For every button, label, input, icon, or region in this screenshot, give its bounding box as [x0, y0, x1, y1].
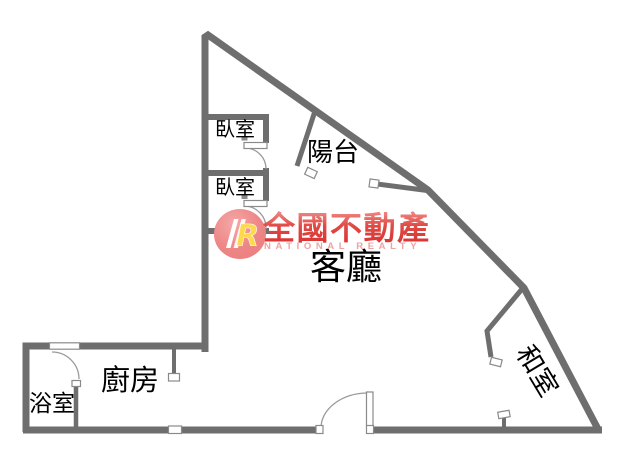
brand-name-en: NATIONAL REALTY	[264, 241, 421, 252]
door-leaf-entrance	[367, 392, 374, 426]
floor-plan-drawing: 臥室 臥室 陽台 客廳 廚房 浴室 和室 R 全國不動產 NATIONAL RE…	[0, 0, 638, 460]
door-arc-entrance	[321, 393, 368, 428]
door-arc-bathroom	[52, 352, 79, 379]
room-label-balcony: 陽台	[307, 138, 359, 168]
room-label-bathroom: 浴室	[29, 391, 75, 417]
floor-plan-canvas: 臥室 臥室 陽台 客廳 廚房 浴室 和室 R 全國不動產 NATIONAL RE…	[0, 0, 638, 460]
door-marker-balcony-right	[369, 179, 379, 188]
logo-monogram: R	[236, 219, 259, 254]
door-post-entrance-left	[316, 426, 323, 434]
door-leaf-bedroom2	[244, 201, 267, 207]
door-marker-tatami-stub	[498, 410, 510, 418]
door-marker-bathroom	[72, 381, 81, 387]
room-label-living-room: 客廳	[310, 247, 382, 288]
door-leaf-bathroom	[50, 343, 80, 349]
wall-tatami-partition	[487, 289, 522, 357]
door-marker-tatami	[490, 357, 502, 366]
brand-watermark: R 全國不動產 NATIONAL REALTY	[214, 209, 431, 259]
door-leaf-bedroom1	[244, 143, 267, 149]
door-marker-balcony-left	[305, 167, 318, 178]
wall-kitchen-top-left-and-outer-left	[26, 346, 49, 432]
door-marker-kitchen-stub	[169, 374, 180, 382]
door-arc-bedroom1	[244, 148, 266, 169]
room-label-kitchen: 廚房	[101, 363, 159, 397]
room-label-bedroom-1: 臥室	[215, 117, 255, 141]
door-post-entrance-right	[367, 426, 374, 434]
window-marker-bottom-wall	[169, 426, 182, 434]
room-label-bedroom-2: 臥室	[215, 175, 255, 199]
